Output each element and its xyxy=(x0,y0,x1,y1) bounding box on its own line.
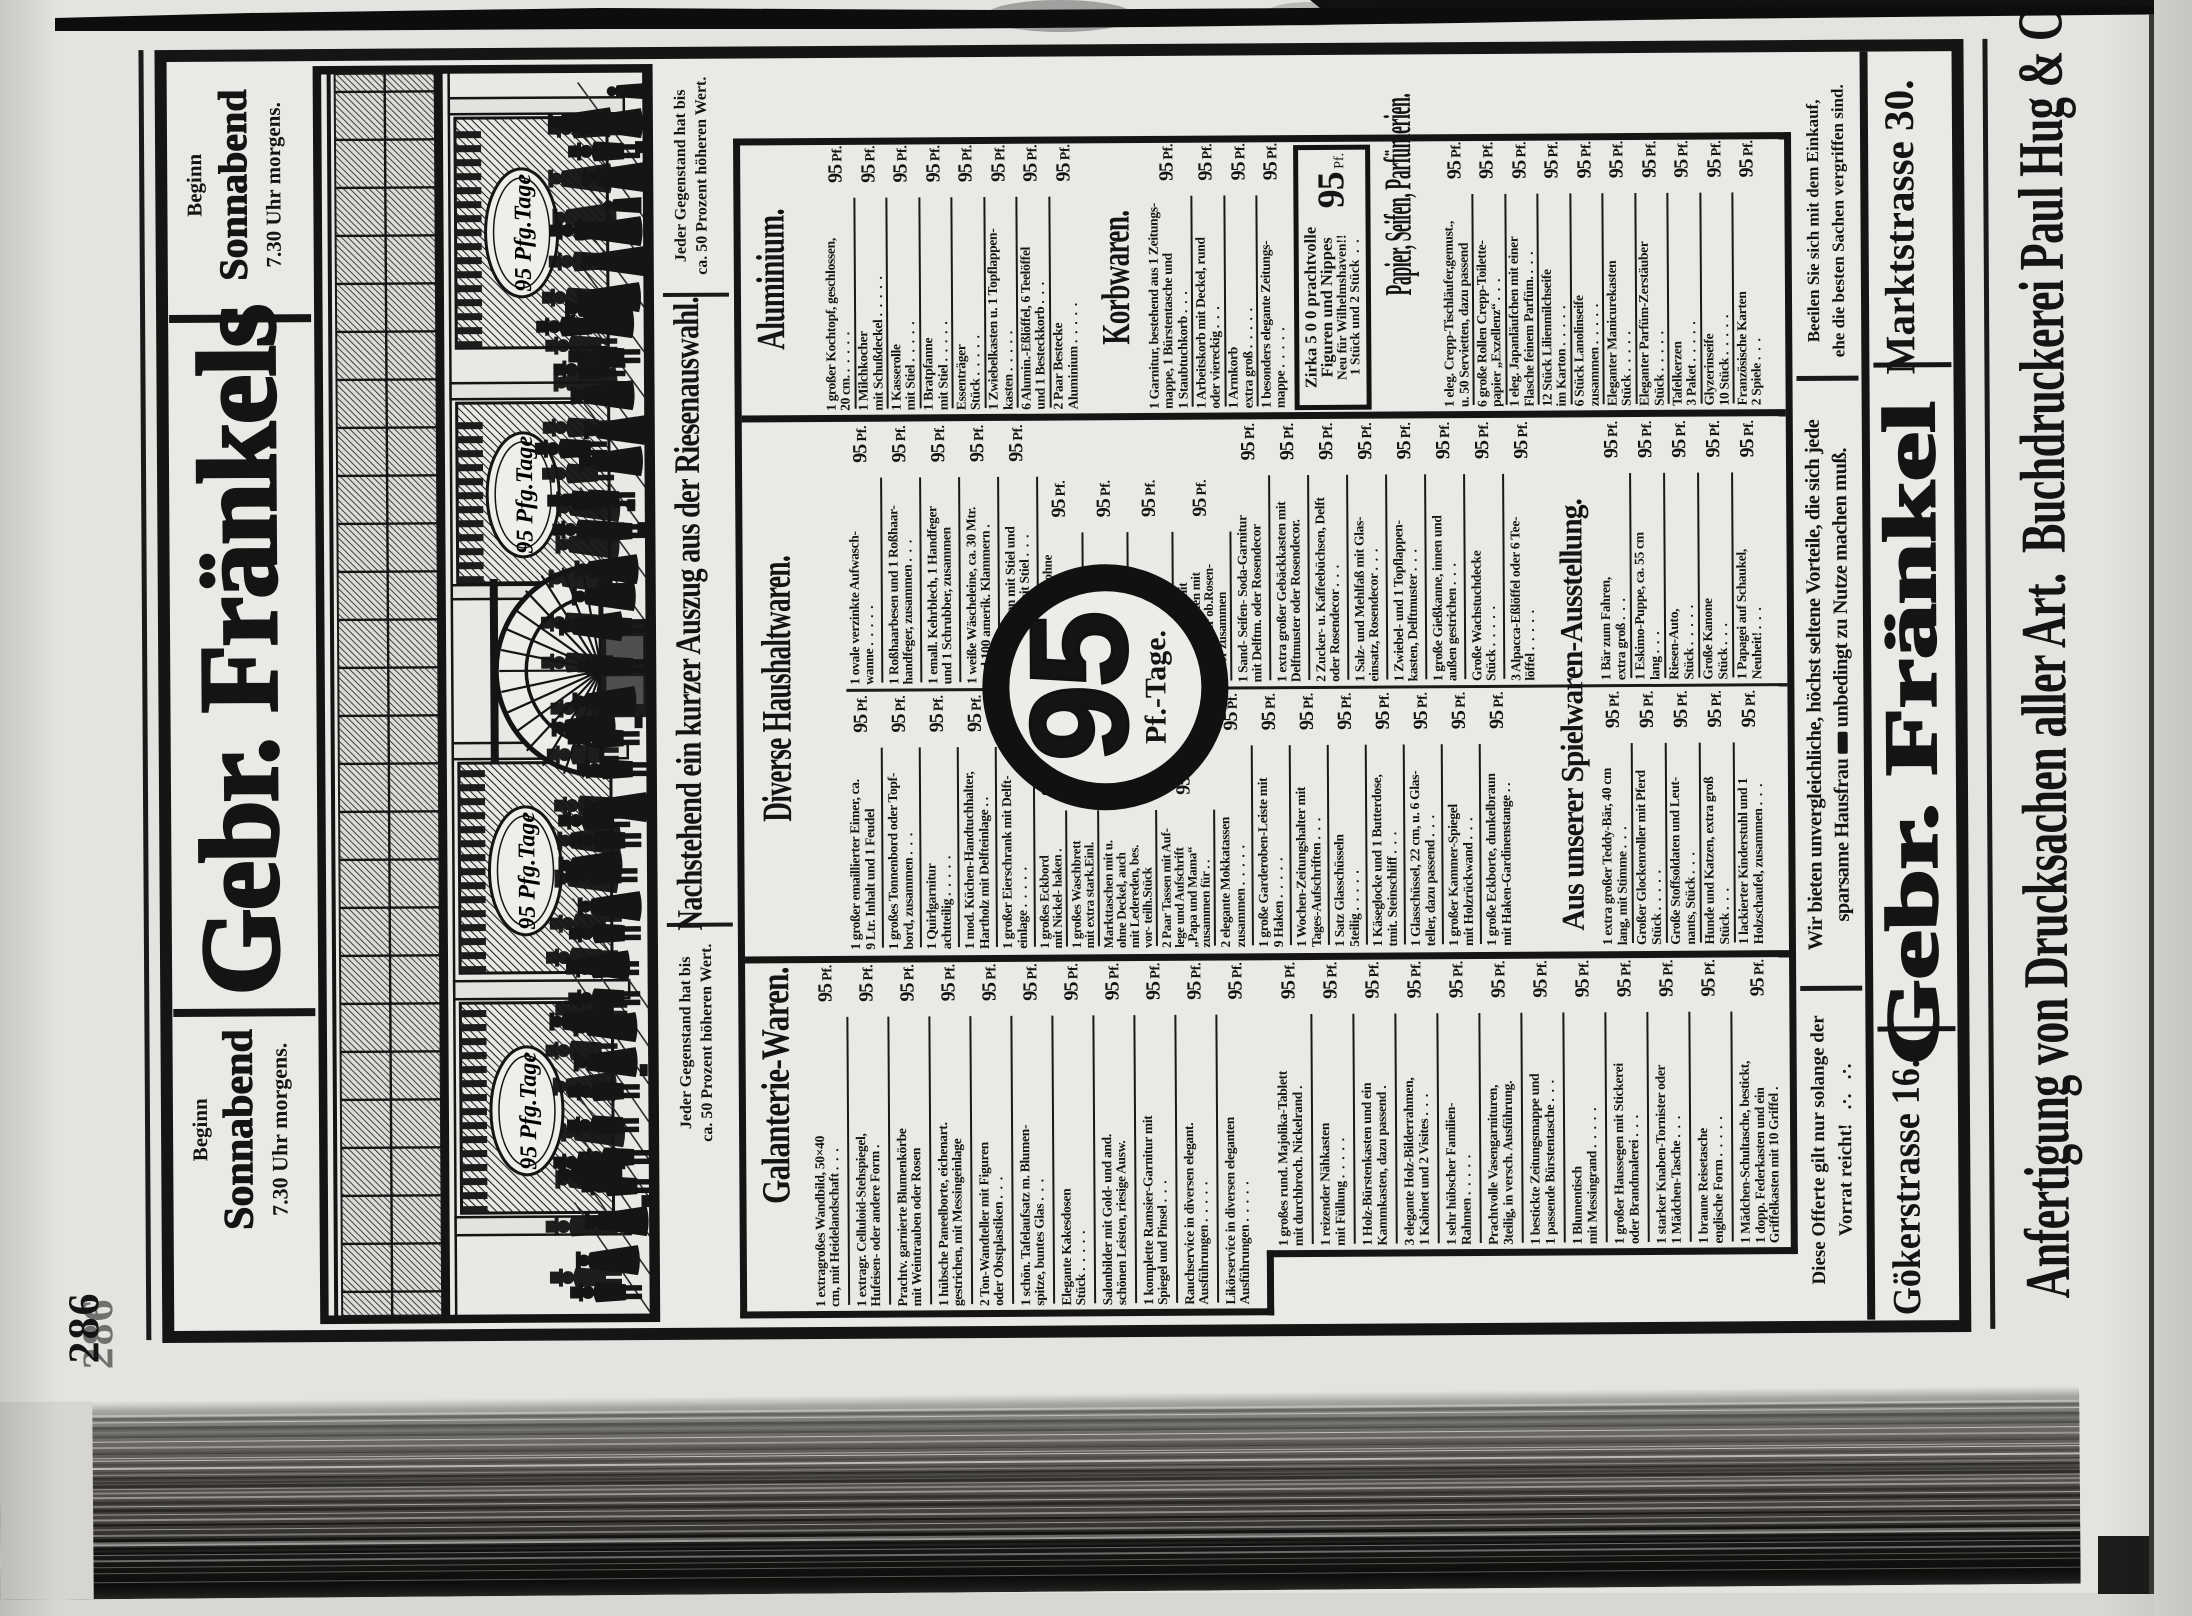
svg-text:95 Pfg.Tage: 95 Pfg.Tage xyxy=(512,436,539,554)
svg-text:95 Pfg.Tage: 95 Pfg.Tage xyxy=(516,1051,543,1169)
svg-text:95 Pfg.Tage: 95 Pfg.Tage xyxy=(514,812,541,930)
svg-text:95 Pfg.Tage: 95 Pfg.Tage xyxy=(510,174,537,292)
